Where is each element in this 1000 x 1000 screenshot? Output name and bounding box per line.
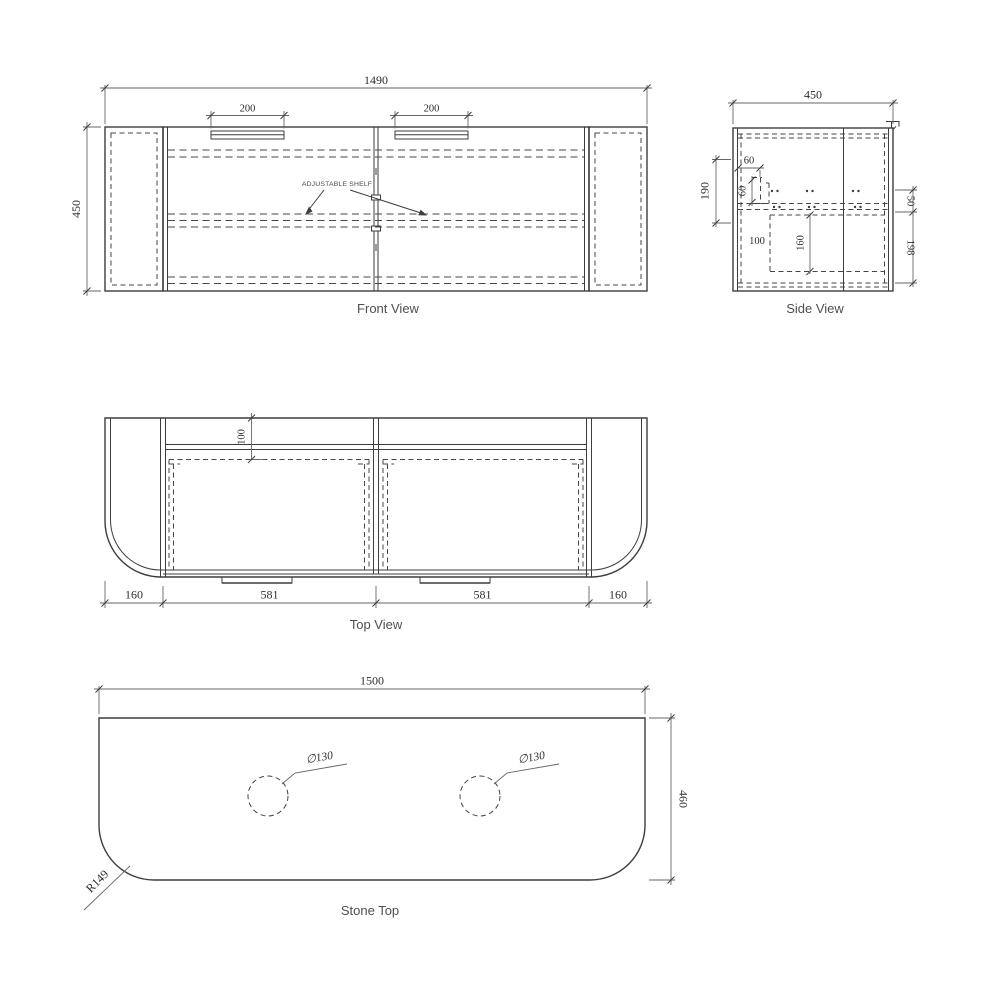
handle-left	[211, 131, 284, 139]
front-view-linework	[105, 127, 647, 291]
drawing-sheet: 1490 200 200 450 ADJUSTABLE SHELF	[0, 0, 1000, 1000]
handle-right	[395, 131, 468, 139]
side-198-dim-label: 198	[905, 240, 916, 256]
adjustable-shelf-callout: ADJUSTABLE SHELF	[302, 181, 427, 216]
side-50-dim-label: 50	[905, 196, 916, 207]
hinge-marks	[372, 168, 381, 251]
vanity-technical-drawing: 1490 200 200 450 ADJUSTABLE SHELF	[0, 0, 1000, 1000]
door-dashed-outlines	[169, 460, 583, 571]
adjustable-shelf-label: ADJUSTABLE SHELF	[302, 181, 372, 188]
top-right-end-dim-label: 160	[609, 588, 627, 602]
stone-top-caption: Stone Top	[341, 903, 399, 918]
handle-right-dim-label: 200	[424, 104, 440, 115]
side-depth-dim-label: 450	[804, 88, 822, 102]
corner-radius-callout: R149	[83, 866, 130, 910]
front-height-dim-label: 450	[69, 200, 83, 218]
top-door-right-dim-label: 581	[474, 588, 492, 602]
top-view: 100 160 581 581 160 Top View	[100, 413, 652, 632]
top-handle-left	[222, 577, 292, 583]
hole-left-callout: ∅130	[282, 750, 347, 784]
front-width-dim-label: 1490	[364, 73, 388, 87]
side-view: 450 190 60 60 100 160	[698, 88, 918, 317]
stone-top: 1500 460 ∅130 ∅130 R149 Stone Top	[83, 674, 690, 919]
stone-top-dimensions: 1500 460 ∅130 ∅130 R149	[83, 674, 690, 911]
top-view-dimensions: 100 160 581 581 160	[100, 413, 652, 608]
front-view-caption: Front View	[357, 301, 420, 316]
leader-arrow-right	[418, 210, 427, 216]
hole-right-callout: ∅130	[494, 750, 559, 784]
top-handle-right	[420, 577, 490, 583]
side-190-dim-label: 190	[698, 182, 712, 200]
handle-left-dim-label: 200	[240, 104, 256, 115]
stone-width-dim-label: 1500	[360, 674, 384, 688]
stone-top-linework	[99, 718, 645, 880]
sink-hole-left	[248, 776, 288, 816]
side-160-dim-label: 160	[796, 235, 807, 251]
corner-radius-dim-label: R149	[83, 867, 111, 895]
side-60h-dim-label: 60	[744, 156, 755, 167]
side-view-caption: Side View	[786, 301, 844, 316]
shelf-pin-dots	[771, 190, 862, 208]
top-door-left-dim-label: 581	[261, 588, 279, 602]
side-60v-dim-label: 60	[738, 186, 749, 197]
side-view-linework	[733, 122, 899, 292]
top-100-dim-label: 100	[237, 429, 248, 445]
front-view: 1490 200 200 450 ADJUSTABLE SHELF	[69, 73, 652, 316]
hole-left-dim-label: ∅130	[305, 750, 334, 767]
top-view-caption: Top View	[350, 617, 403, 632]
stone-depth-dim-label: 460	[677, 790, 691, 808]
hole-right-dim-label: ∅130	[517, 750, 546, 767]
sink-hole-right	[460, 776, 500, 816]
top-view-linework	[105, 418, 647, 583]
top-left-end-dim-label: 160	[125, 588, 143, 602]
side-100-dim-label: 100	[749, 236, 765, 247]
